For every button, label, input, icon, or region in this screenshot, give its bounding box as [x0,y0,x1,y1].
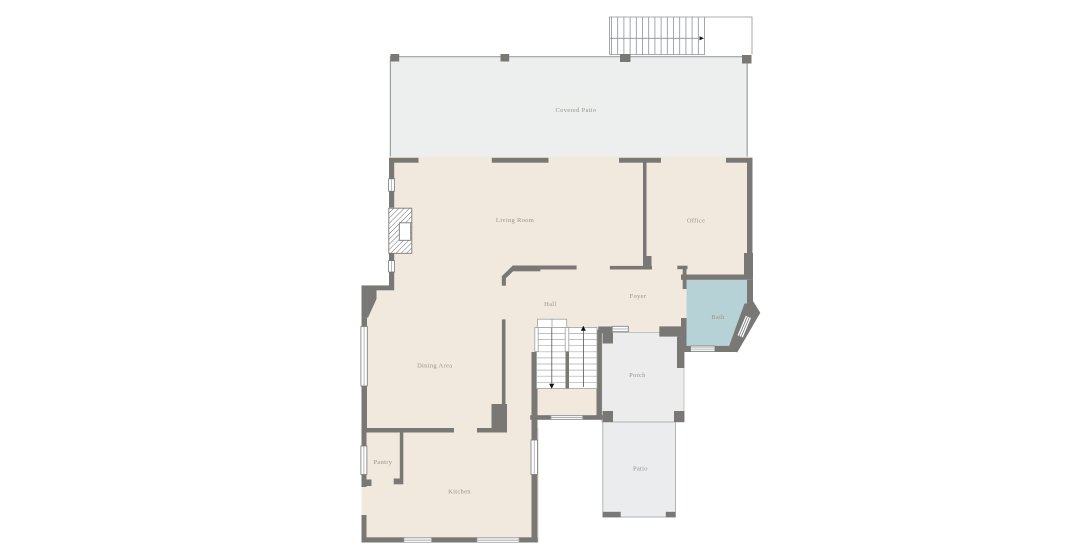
svg-text:Pantry: Pantry [374,459,393,466]
svg-text:Kitchen: Kitchen [448,489,471,496]
svg-text:Office: Office [687,218,705,225]
svg-text:Patio: Patio [633,465,648,472]
svg-text:Dining Area: Dining Area [417,362,452,369]
svg-text:Bath: Bath [711,314,725,321]
svg-text:Living Room: Living Room [496,217,534,224]
svg-text:Hall: Hall [544,301,556,308]
svg-text:Foyer: Foyer [630,293,647,300]
svg-text:Porch: Porch [629,372,646,379]
svg-text:Covered Patio: Covered Patio [556,107,597,114]
